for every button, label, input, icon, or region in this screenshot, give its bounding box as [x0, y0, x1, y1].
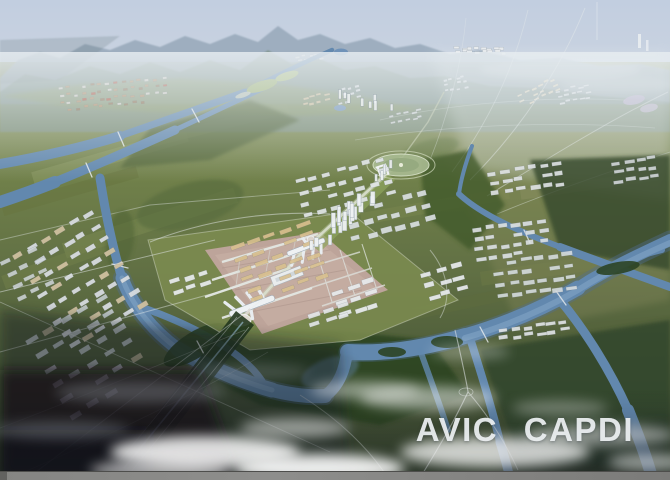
rendering-canvas — [0, 0, 670, 480]
bottom-window-edge-bar — [0, 471, 670, 480]
watermark-text: AVIC CAPDI — [416, 411, 634, 449]
aerial-city-rendering: AVIC CAPDI — [0, 0, 670, 480]
